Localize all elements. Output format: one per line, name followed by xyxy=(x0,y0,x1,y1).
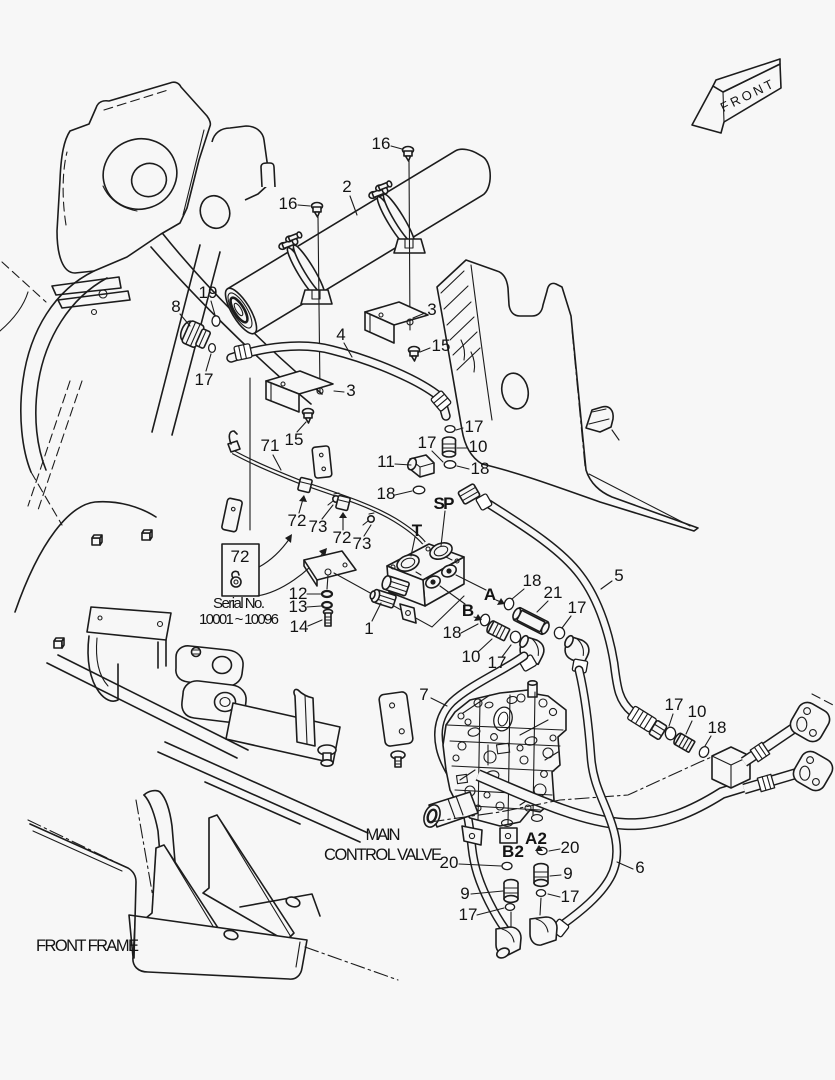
svg-text:1: 1 xyxy=(364,619,373,638)
svg-text:10: 10 xyxy=(688,702,707,721)
svg-text:10: 10 xyxy=(469,437,488,456)
svg-text:Serial No.: Serial No. xyxy=(213,595,265,612)
svg-text:17: 17 xyxy=(488,653,507,672)
svg-text:19: 19 xyxy=(199,283,218,302)
svg-text:A: A xyxy=(484,585,496,604)
svg-text:17: 17 xyxy=(568,598,587,617)
svg-text:73: 73 xyxy=(353,534,372,553)
svg-text:T: T xyxy=(412,521,423,540)
svg-text:6: 6 xyxy=(635,858,644,877)
svg-text:B2: B2 xyxy=(502,842,524,861)
svg-text:18: 18 xyxy=(471,459,490,478)
svg-text:8: 8 xyxy=(171,297,180,316)
svg-text:9: 9 xyxy=(460,884,469,903)
svg-text:4: 4 xyxy=(336,325,345,344)
svg-text:72: 72 xyxy=(288,511,307,530)
svg-text:FRONT FRAME: FRONT FRAME xyxy=(36,937,139,955)
svg-text:72: 72 xyxy=(333,528,352,547)
svg-text:11: 11 xyxy=(377,452,395,471)
svg-text:14: 14 xyxy=(290,617,309,636)
svg-text:CONTROL VALVE: CONTROL VALVE xyxy=(324,846,442,864)
svg-text:18: 18 xyxy=(708,718,727,737)
svg-text:15: 15 xyxy=(432,336,451,355)
svg-text:18: 18 xyxy=(523,571,542,590)
svg-text:5: 5 xyxy=(614,566,623,585)
svg-text:17: 17 xyxy=(195,370,214,389)
svg-text:17: 17 xyxy=(665,695,684,714)
svg-text:A2: A2 xyxy=(525,829,547,848)
svg-text:73: 73 xyxy=(309,517,328,536)
svg-text:17: 17 xyxy=(459,905,478,924)
svg-text:16: 16 xyxy=(279,194,298,213)
svg-text:10001 ~ 10096: 10001 ~ 10096 xyxy=(199,611,279,628)
svg-text:18: 18 xyxy=(377,484,396,503)
svg-text:71: 71 xyxy=(261,436,280,455)
svg-text:MAIN: MAIN xyxy=(366,826,401,844)
svg-text:13: 13 xyxy=(289,597,308,616)
svg-text:2: 2 xyxy=(342,177,351,196)
svg-text:SP: SP xyxy=(434,494,455,513)
svg-text:10: 10 xyxy=(462,647,481,666)
svg-text:B: B xyxy=(462,601,474,620)
svg-text:18: 18 xyxy=(443,623,462,642)
svg-text:20: 20 xyxy=(561,838,580,857)
svg-text:7: 7 xyxy=(419,685,428,704)
svg-text:20: 20 xyxy=(440,853,459,872)
svg-text:9: 9 xyxy=(563,864,572,883)
svg-text:17: 17 xyxy=(561,887,580,906)
svg-text:3: 3 xyxy=(346,381,355,400)
svg-text:16: 16 xyxy=(372,134,391,153)
svg-text:17: 17 xyxy=(418,433,437,452)
svg-text:17: 17 xyxy=(465,417,484,436)
svg-text:21: 21 xyxy=(544,583,563,602)
svg-text:15: 15 xyxy=(285,430,304,449)
svg-text:72: 72 xyxy=(231,547,250,566)
svg-text:3: 3 xyxy=(427,300,436,319)
